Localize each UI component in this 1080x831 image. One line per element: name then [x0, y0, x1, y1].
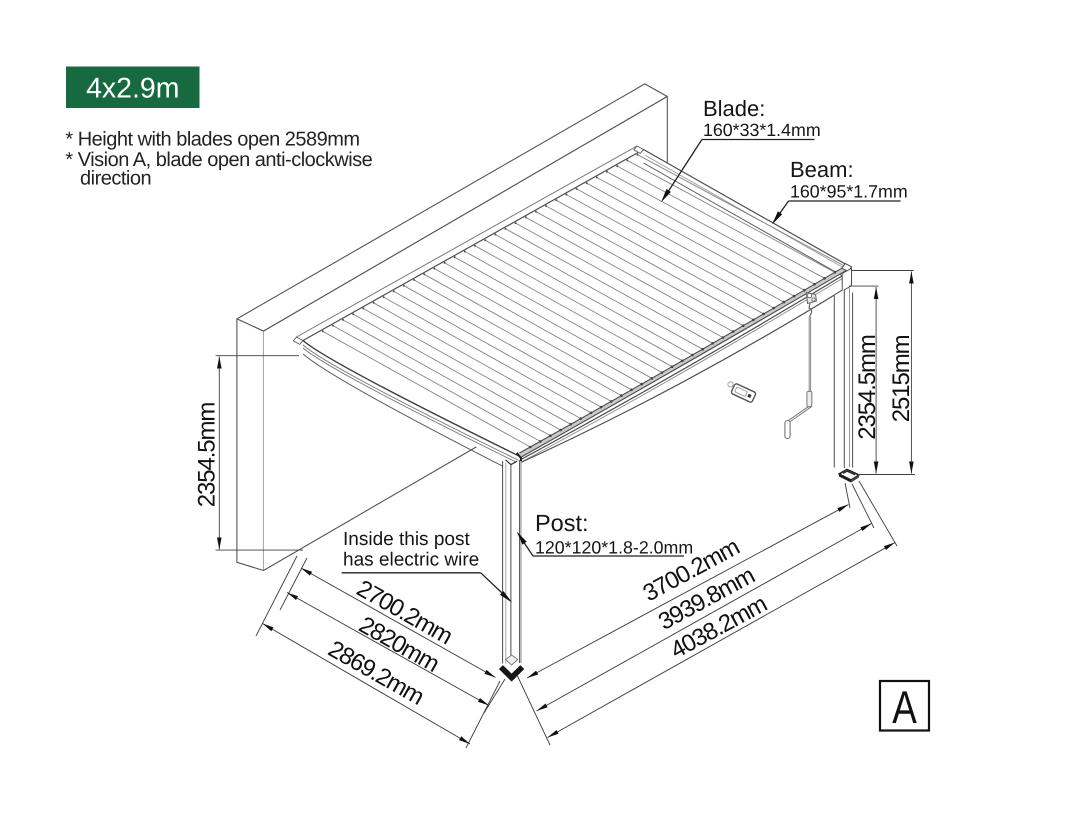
svg-text:2354.5mm: 2354.5mm — [854, 335, 881, 440]
svg-text:160*95*1.7mm: 160*95*1.7mm — [790, 182, 908, 202]
svg-text:120*120*1.8-2.0mm: 120*120*1.8-2.0mm — [535, 538, 693, 558]
svg-text:* Height with blades open 2589: * Height with blades open 2589mm — [65, 129, 359, 151]
svg-text:Post:: Post: — [535, 510, 589, 536]
svg-text:4x2.9m: 4x2.9m — [86, 73, 179, 105]
svg-text:2515mm: 2515mm — [888, 335, 915, 422]
svg-text:Beam:: Beam: — [790, 157, 854, 182]
svg-text:Blade:: Blade: — [703, 96, 765, 121]
svg-text:160*33*1.4mm: 160*33*1.4mm — [703, 120, 821, 140]
svg-text:direction: direction — [80, 168, 151, 190]
svg-text:Inside this post: Inside this post — [343, 529, 470, 550]
svg-text:2354.5mm: 2354.5mm — [194, 403, 221, 508]
svg-text:A: A — [892, 681, 917, 733]
svg-text:has electric wire: has electric wire — [343, 550, 479, 571]
